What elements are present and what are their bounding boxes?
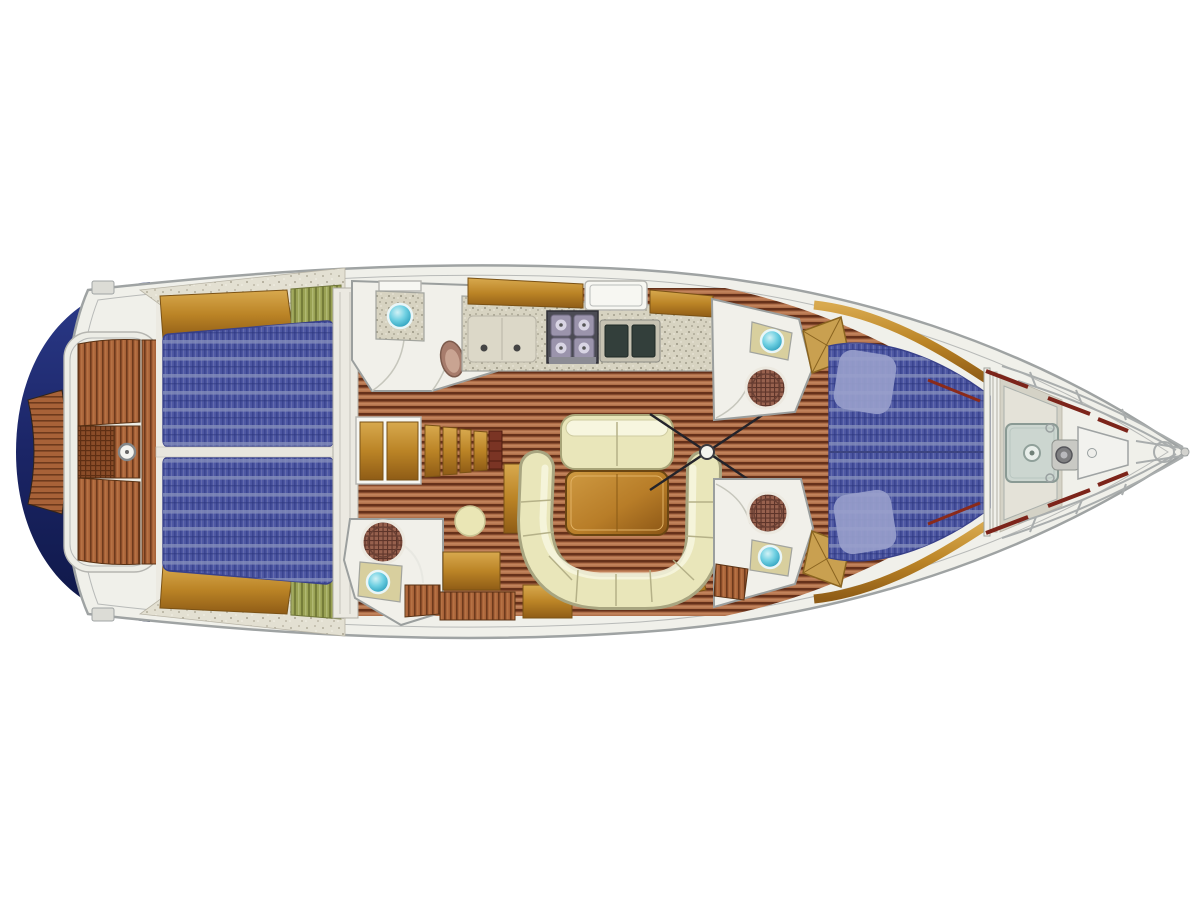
companionway-grate — [489, 431, 502, 469]
stern-locker-port — [92, 281, 114, 294]
sf-head-sink — [759, 546, 781, 568]
galley-faucet-1 — [481, 345, 488, 352]
stair-tread-2 — [443, 427, 457, 475]
pillow-starboard — [832, 488, 899, 556]
port-head-sink — [388, 304, 412, 328]
pf-head-sink — [761, 330, 783, 352]
yacht-deck-plan — [0, 0, 1200, 900]
double-sink — [600, 320, 660, 362]
salon-bench — [561, 415, 673, 469]
sf-head-seat — [714, 564, 748, 600]
aft-cabins — [140, 268, 358, 636]
stern-locker-starboard — [92, 608, 114, 621]
stove — [547, 311, 598, 364]
cockpit-bench-port — [78, 340, 140, 427]
head-seat — [405, 585, 440, 617]
port-head-hatch — [379, 281, 421, 291]
swim-platform — [28, 390, 67, 514]
port-aft-berth — [163, 321, 333, 447]
windlass — [1052, 440, 1080, 470]
centerline-divider — [156, 447, 345, 457]
pillow-port — [832, 348, 899, 416]
stair-tread-4 — [474, 431, 487, 471]
galley-faucet-2 — [514, 345, 521, 352]
deck-plan-drawing — [0, 0, 1200, 900]
salon-table — [566, 471, 668, 535]
starboard-aft-berth — [163, 457, 333, 584]
stair-tread-1 — [425, 425, 440, 477]
stool — [455, 506, 485, 536]
cockpit-grating — [78, 426, 114, 478]
shower-head-sink — [367, 571, 389, 593]
stair-tread-3 — [460, 429, 471, 473]
cockpit-bench-starboard — [78, 478, 140, 565]
aft-cabin-step — [142, 340, 158, 564]
